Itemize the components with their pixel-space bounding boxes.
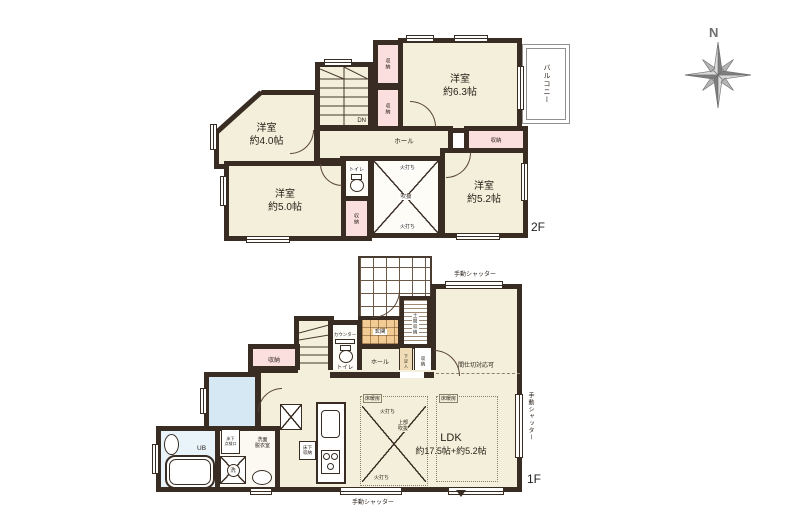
washroom-label: 洗面 脱衣室: [255, 437, 270, 449]
underfloor-storage-label: 床下 収納: [303, 446, 312, 456]
balcony: バルコニー: [522, 44, 570, 124]
closet-label: 収納: [490, 136, 501, 144]
window-shutter: [445, 281, 503, 289]
washing-machine: 洗: [220, 456, 246, 484]
fire-brace-label: 火打ち: [400, 164, 415, 171]
window: [521, 163, 528, 201]
compass-rose-icon: [685, 42, 751, 108]
floor-heating-label: 床暖房: [363, 394, 382, 403]
window: [406, 35, 434, 42]
underfloor-hatch: 床下 点検口: [221, 429, 240, 454]
window: [250, 488, 272, 495]
closet-label: 収納: [353, 213, 360, 225]
unit-bath-label: UB: [197, 445, 206, 452]
void-2f: 火打ち 吹抜 火打ち: [369, 156, 443, 238]
closet-label: 収納: [268, 355, 280, 364]
window: [324, 59, 352, 66]
toilet-icon: [339, 345, 352, 362]
room-stairs-2f: DN: [315, 62, 373, 130]
fire-brace-label: 火打ち: [400, 223, 415, 230]
window: [200, 388, 207, 414]
ldk-area: 約17.5帖+約5.2帖: [386, 444, 516, 457]
window-shutter: [515, 394, 523, 458]
closet-label: 収納: [385, 103, 392, 115]
entrance-label: 玄関: [373, 329, 386, 335]
shutter-label-bottom: 手動シャッター: [338, 497, 408, 506]
ldk-label-group: LDK 約17.5帖+約5.2帖: [386, 432, 516, 457]
entrance-storage-label: 土間収納: [412, 313, 419, 335]
stairs-treads-2f-icon: [320, 67, 368, 125]
kitchen-stove: [321, 450, 340, 474]
bath-sink-icon: [164, 434, 179, 455]
closet-label: 収納: [420, 356, 426, 367]
toilet-counter-line: [335, 339, 355, 344]
toilet-label: トイレ: [348, 168, 365, 174]
floor-plan-canvas: DN 収納 収納 洋室 約6.3帖 バルコニー 洋室 約4.0帖 ホール トイレ…: [0, 0, 800, 531]
room-unit-bath: UB: [156, 426, 220, 492]
room-label: 洋室 約4.0帖: [250, 112, 284, 148]
hall-label: ホール: [371, 357, 389, 366]
upper-void-label: 上部 吹抜: [398, 420, 408, 432]
floor-label-1f: 1F: [527, 472, 541, 486]
shutter-label-right: 手動シャッター: [526, 392, 535, 441]
floor-label-2f: 2F: [531, 220, 545, 234]
kitchen-sink: [321, 410, 340, 438]
room-label: 洋室 約5.0帖: [268, 188, 302, 214]
washroom-sink-icon: [252, 470, 272, 485]
window: [220, 176, 227, 206]
washing-machine-label: 洗: [227, 464, 240, 477]
hall-label: ホール: [394, 131, 414, 145]
window: [152, 444, 159, 474]
closet-label: 収納: [385, 58, 392, 70]
balcony-label: バルコニー: [541, 64, 551, 104]
window: [517, 66, 524, 110]
window-shutter: [340, 487, 402, 495]
void-label: 吹抜: [399, 194, 412, 200]
ldk-name: LDK: [386, 432, 516, 444]
stairs-down-label: DN: [357, 118, 366, 124]
room-label: 洋室 約5.2帖: [467, 180, 501, 206]
floor-heating-label: 床暖房: [439, 394, 458, 403]
bathtub-icon: [165, 455, 215, 489]
window: [454, 35, 488, 42]
toilet-icon: [350, 174, 363, 191]
refrigerator-space: [280, 404, 302, 430]
toilet-counter-label: カウンター: [334, 332, 357, 338]
window: [210, 124, 217, 150]
door-opening: [400, 372, 424, 378]
opening-marker: [456, 490, 466, 497]
fire-brace-label: 火打ち: [374, 474, 389, 481]
closet-2f-lower: 収納: [341, 196, 372, 241]
window: [456, 233, 500, 240]
fire-brace-label: 火打ち: [380, 408, 395, 415]
shoe-cabinet-label: 下足入: [403, 354, 409, 369]
room-label: 洋室 約6.3帖: [443, 73, 477, 99]
compass-north-label: N: [709, 25, 718, 40]
room-blue-utility: [204, 372, 260, 432]
window: [246, 236, 290, 243]
underfloor-storage: 床下 収納: [299, 441, 316, 460]
underfloor-hatch-label: 床下 点検口: [225, 437, 237, 446]
shutter-label-top: 手動シャッター: [429, 269, 521, 278]
